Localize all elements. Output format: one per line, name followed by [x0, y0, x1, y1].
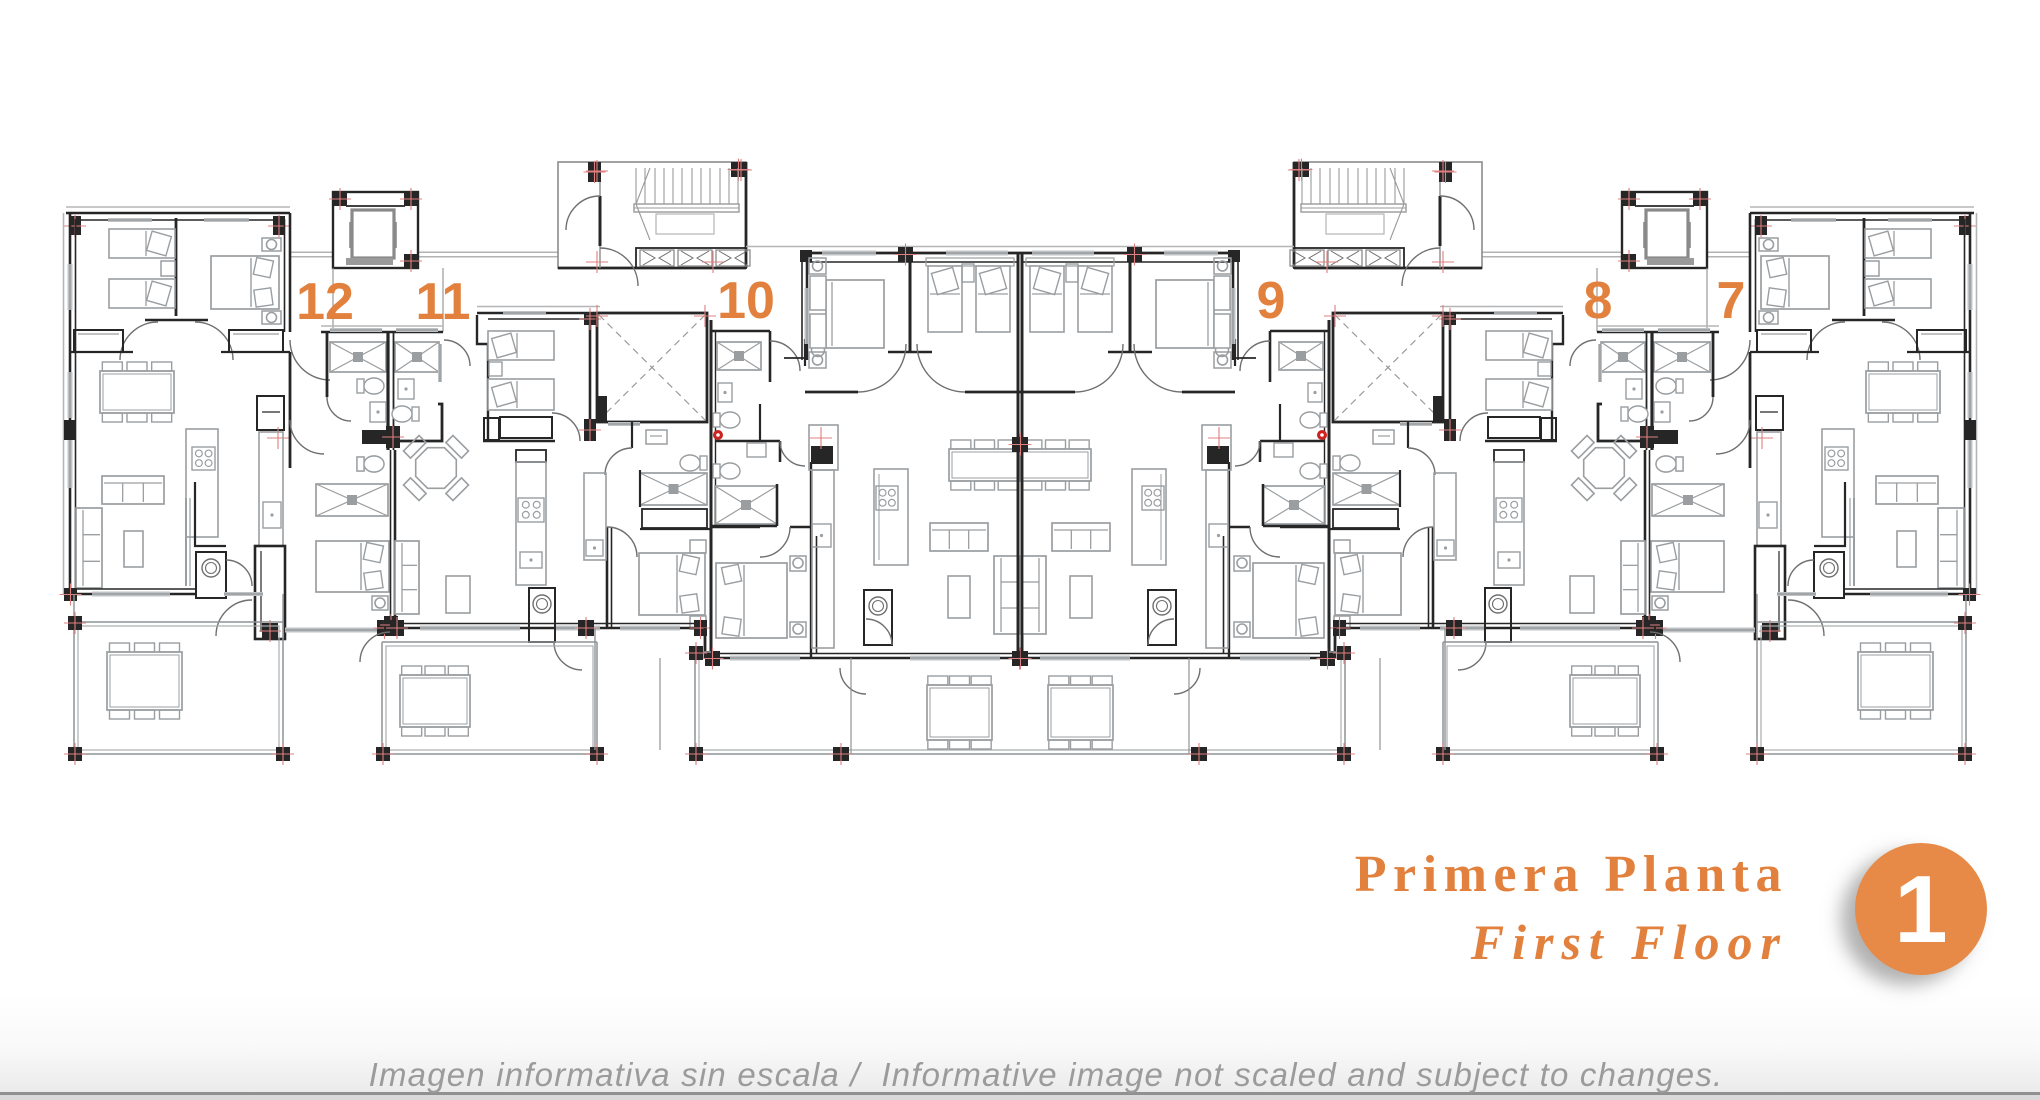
svg-text:10: 10 — [717, 272, 775, 330]
svg-text:7: 7 — [1717, 272, 1746, 330]
svg-text:8: 8 — [1584, 272, 1613, 330]
svg-text:12: 12 — [296, 273, 354, 331]
svg-text:11: 11 — [416, 273, 471, 331]
svg-text:9: 9 — [1257, 272, 1286, 330]
